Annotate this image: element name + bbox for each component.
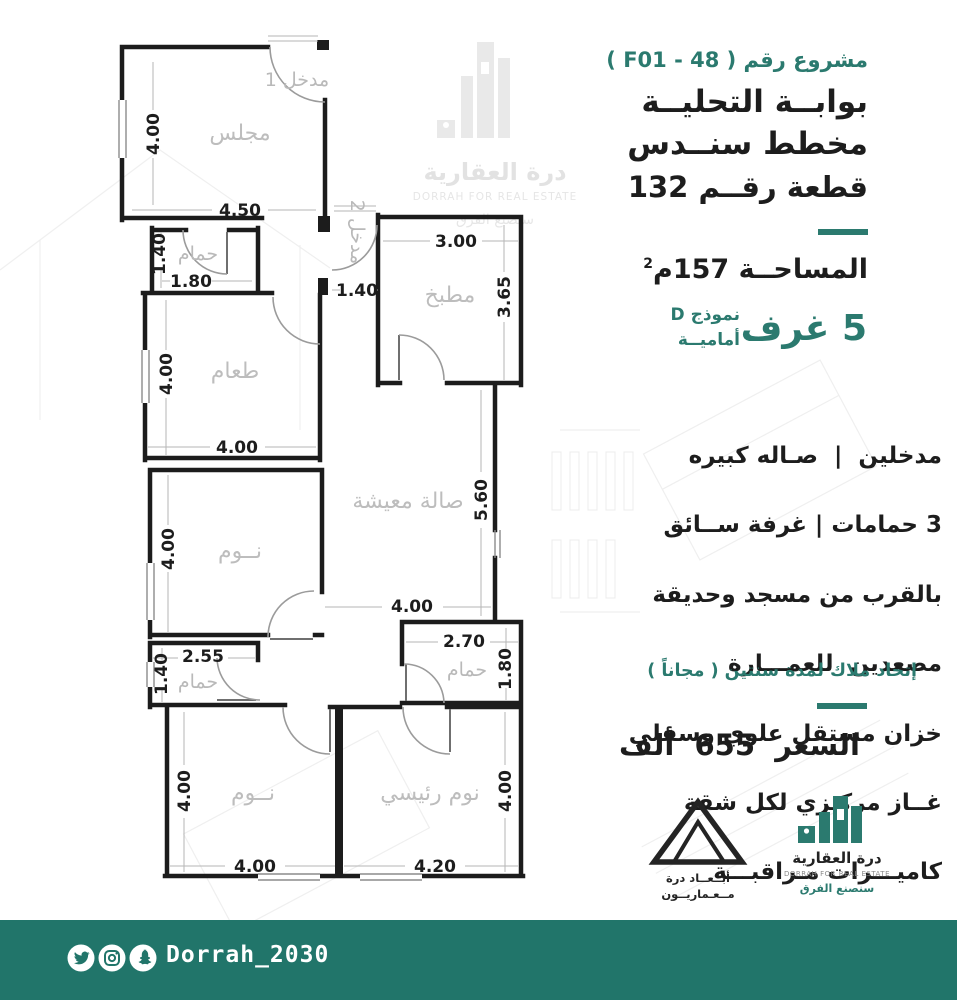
dim-majlis-width: 4.50 bbox=[219, 201, 261, 221]
social-handle[interactable]: Dorrah_2030 bbox=[166, 942, 329, 968]
twitter-icon[interactable] bbox=[68, 945, 95, 972]
floor-plan-walls bbox=[122, 47, 523, 876]
dim-master-width: 4.20 bbox=[414, 857, 456, 877]
room-label-kitchen: مطبخ bbox=[425, 283, 476, 308]
dim-bath2-height: 1.40 bbox=[152, 653, 172, 695]
dorrah-logo-slogan: سنصنع الفرق bbox=[800, 882, 874, 895]
room-label-entrance1: مدخل 1 bbox=[265, 69, 329, 91]
room-label-bedroom1: نــوم bbox=[218, 539, 262, 564]
room-label-bedroom2: نــوم bbox=[231, 781, 275, 806]
dim-bath3-width: 2.70 bbox=[443, 632, 485, 652]
dim-bath2-width: 2.55 bbox=[182, 647, 224, 667]
room-label-bath2: حمام bbox=[178, 671, 218, 693]
room-label-majlis: مجلس bbox=[209, 121, 270, 146]
room-label-entrance2: مدخل 2 bbox=[346, 200, 368, 264]
dim-bath1-width: 1.80 bbox=[170, 272, 212, 292]
feature-item: بالقرب من مسجد وحديقة bbox=[632, 580, 942, 611]
dorrah-logo-en: DORRAH FOR REAL ESTATE bbox=[784, 870, 890, 878]
area-line: المساحــة 157م2 bbox=[643, 254, 868, 285]
feature-item: 3 حمامات | غرفة ســائق bbox=[632, 510, 942, 541]
instagram-icon[interactable] bbox=[99, 945, 126, 972]
room-label-master: نوم رئيسي bbox=[380, 781, 479, 806]
abaad-logo-line2: مــعـماريــون bbox=[661, 887, 734, 902]
dorrah-logo-ar: درة العقارية bbox=[792, 849, 882, 867]
feature-item: مدخلين | صـاله كبيره bbox=[632, 441, 942, 472]
plot-number: قطعة رقــم 132 bbox=[628, 170, 868, 204]
dim-kitchen-width: 3.00 bbox=[435, 232, 477, 252]
area-text: المساحــة 157م bbox=[653, 254, 868, 285]
room-label-living: صالة معيشة bbox=[352, 489, 463, 514]
dim-dining-width: 4.00 bbox=[216, 438, 258, 458]
dim-kitchen-height: 3.65 bbox=[495, 276, 515, 318]
project-title-line1: بوابــة التحليــة bbox=[641, 84, 868, 120]
abaad-logo-line1: أبــعــاد درة bbox=[666, 870, 730, 885]
price-line: السعر 655 ألف bbox=[619, 728, 860, 762]
hoa-note: إتحاد ملاك لمدة سنتين ( مجاناً ) bbox=[647, 661, 917, 681]
floor-plan: 4.00 4.50 1.40 1.80 1.40 3.00 3.65 4.00 … bbox=[0, 0, 630, 915]
divider-top bbox=[818, 229, 868, 235]
dorrah-logo: درة العقارية DORRAH FOR REAL ESTATE سنصن… bbox=[782, 790, 894, 904]
dim-dining-height: 4.00 bbox=[157, 353, 177, 395]
model-type: نموذج D bbox=[671, 305, 740, 325]
room-label-dining: طعام bbox=[211, 359, 259, 384]
dim-bedroom2-height: 4.00 bbox=[175, 770, 195, 812]
project-number: مشروع رقم ( F01 - 48 ) bbox=[606, 48, 868, 72]
abaad-architects-logo: أبــعــاد درة مــعـماريــون bbox=[648, 796, 748, 904]
project-title-line2: مخطط سنــدس bbox=[627, 126, 868, 162]
dim-majlis-height: 4.00 bbox=[144, 113, 164, 155]
room-label-bath1: حمام bbox=[178, 243, 218, 265]
rooms-count: 5 غرف bbox=[741, 308, 867, 349]
flyer-page: درة العقارية DORRAH FOR REAL ESTATE سنصن… bbox=[0, 0, 957, 1000]
social-icons bbox=[64, 930, 164, 986]
model-facing: أماميــة bbox=[678, 330, 740, 350]
dim-living-width: 4.00 bbox=[391, 597, 433, 617]
dim-bath3-height: 1.80 bbox=[496, 648, 516, 690]
dim-bedroom2-width: 4.00 bbox=[234, 857, 276, 877]
snapchat-icon[interactable] bbox=[130, 945, 157, 972]
dim-living-height: 5.60 bbox=[472, 479, 492, 521]
dim-bedroom1-height: 4.00 bbox=[159, 528, 179, 570]
room-label-bath3: حمام bbox=[447, 659, 487, 681]
dim-bath1-height: 1.40 bbox=[150, 233, 170, 275]
features-list: مدخلين | صـاله كبيره 3 حمامات | غرفة ســ… bbox=[632, 403, 942, 996]
divider-price bbox=[817, 703, 867, 709]
dim-master-height: 4.00 bbox=[496, 770, 516, 812]
dim-entrance2-width: 1.40 bbox=[336, 281, 378, 301]
area-superscript: 2 bbox=[643, 256, 653, 272]
